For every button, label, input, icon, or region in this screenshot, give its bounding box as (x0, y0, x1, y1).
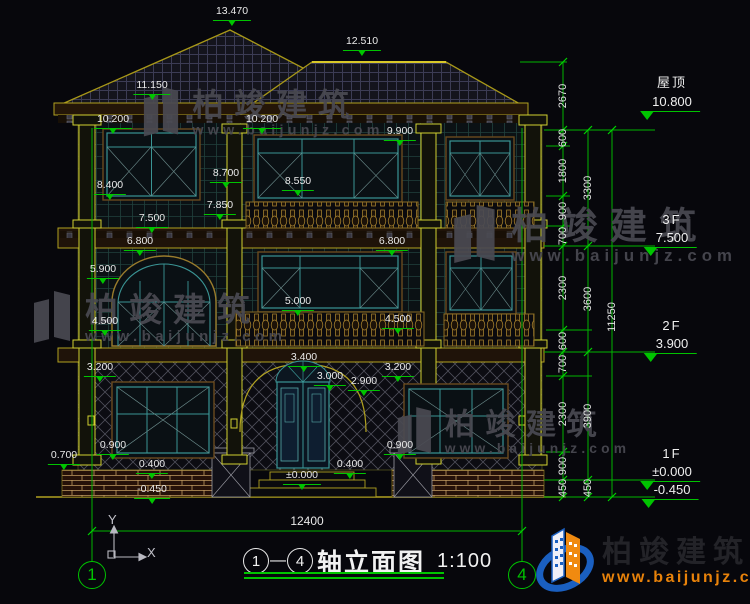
title-scale: 1:100 (437, 550, 492, 573)
watermark-logo-icon (396, 408, 436, 458)
watermark-text: 柏竣建筑 (445, 409, 630, 441)
watermark: 柏竣建筑www.baijunjz.com (32, 292, 286, 346)
railing-3f-center (246, 202, 418, 228)
window-3f-center (254, 135, 402, 202)
brand-url: www.baijunjz.com (602, 569, 750, 587)
watermark-url: www.baijunjz.com (192, 122, 383, 138)
watermark-logo-icon (32, 292, 76, 346)
watermark-url: www.baijunjz.com (445, 441, 630, 457)
band-2f-1f (58, 348, 544, 362)
cad-canvas: Y X 12400 13.47012.51011.15010.20010.200… (0, 0, 750, 604)
watermark-logo-icon (452, 206, 501, 266)
watermark: 柏竣建筑www.baijunjz.com (452, 206, 737, 266)
watermark-text: 柏竣建筑 (192, 89, 383, 122)
window-3f-left (103, 129, 200, 200)
title-underline (244, 572, 444, 574)
title-axis-bubble-end: 4 (287, 548, 313, 574)
watermark-url: www.baijunjz.com (85, 328, 286, 345)
window-1f-left (112, 382, 214, 458)
watermark: 柏竣建筑www.baijunjz.com (396, 408, 630, 458)
title-underline (244, 577, 444, 579)
brand-name: 柏竣建筑 (602, 536, 750, 569)
brand-logo: 柏竣建筑 www.baijunjz.com (536, 524, 750, 598)
window-3f-right (446, 137, 514, 200)
railing-2f-right (444, 314, 534, 346)
watermark-url: www.baijunjz.com (511, 246, 737, 265)
watermark-logo-icon (142, 88, 184, 139)
watermark-text: 柏竣建筑 (511, 207, 737, 246)
brand-logo-icon (536, 524, 594, 598)
title-dash: — (270, 552, 286, 570)
entrance-steps (248, 472, 376, 497)
watermark-text: 柏竣建筑 (85, 293, 286, 328)
title-axis-bubble-start: 1 (243, 548, 269, 574)
watermark: 柏竣建筑www.baijunjz.com (142, 88, 384, 139)
